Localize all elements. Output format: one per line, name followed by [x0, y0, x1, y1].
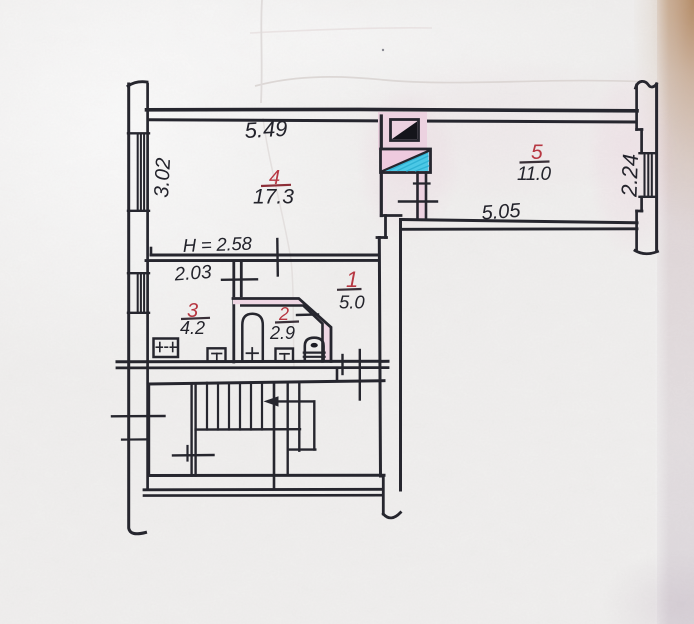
svg-text:H = 2.58: H = 2.58 [182, 233, 252, 256]
svg-text:4.2: 4.2 [180, 318, 205, 338]
svg-text:11.0: 11.0 [517, 164, 552, 185]
svg-text:5.05: 5.05 [481, 200, 522, 225]
svg-text:5: 5 [531, 141, 543, 164]
svg-text:17.3: 17.3 [253, 186, 294, 209]
svg-text:2.24: 2.24 [616, 153, 643, 198]
svg-text:5.49: 5.49 [244, 116, 288, 143]
svg-text:2.03: 2.03 [173, 262, 213, 286]
svg-text:2.9: 2.9 [269, 323, 295, 343]
svg-text:3.02: 3.02 [150, 157, 175, 199]
svg-text:5.0: 5.0 [339, 292, 365, 313]
